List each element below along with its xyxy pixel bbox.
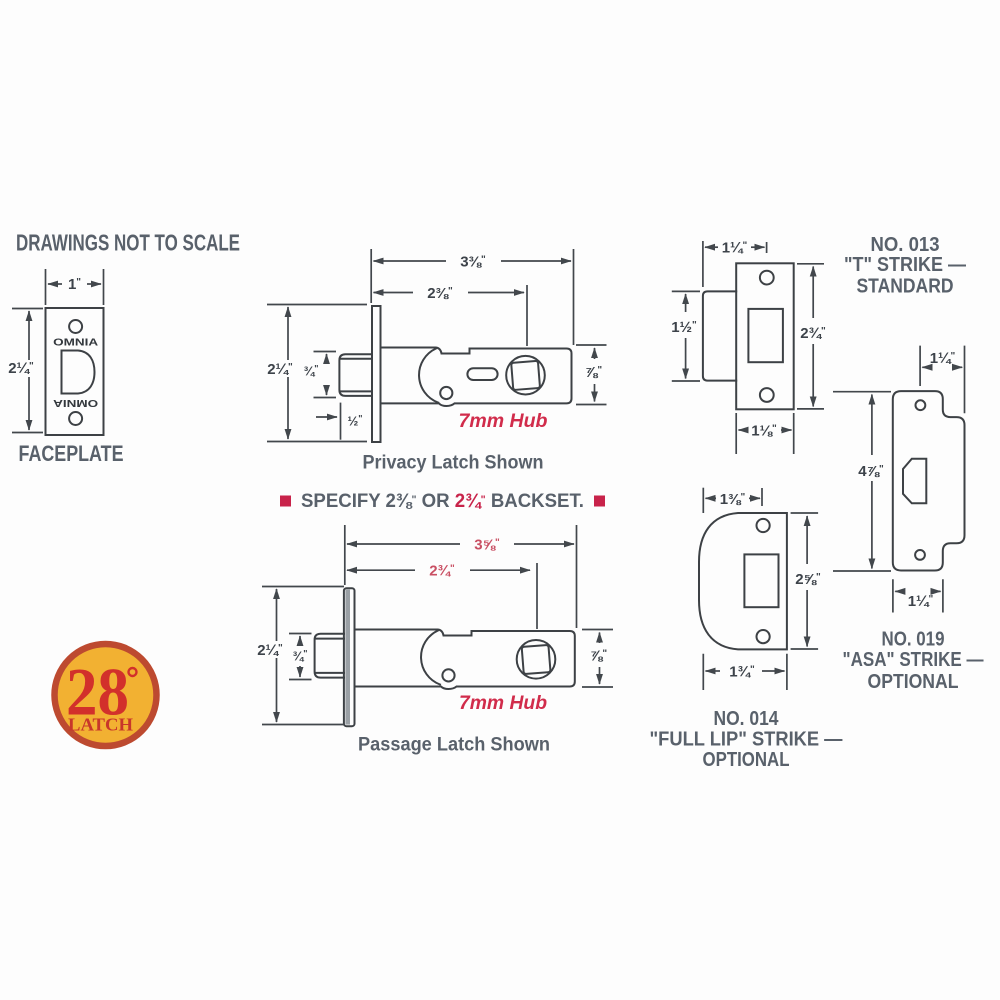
svg-text:SPECIFY 2⅜" OR 2¾" BACKSET.: SPECIFY 2⅜" OR 2¾" BACKSET.: [301, 490, 584, 512]
svg-text:"FULL LIP" STRIKE —: "FULL LIP" STRIKE —: [650, 729, 843, 751]
svg-text:OPTIONAL: OPTIONAL: [868, 671, 959, 693]
svg-text:NO. 013: NO. 013: [871, 234, 940, 256]
svg-text:Privacy Latch Shown: Privacy Latch Shown: [363, 453, 544, 474]
svg-text:Passage Latch Shown: Passage Latch Shown: [358, 735, 550, 756]
svg-text:OPTIONAL: OPTIONAL: [703, 749, 790, 771]
svg-text:OMNIA: OMNIA: [53, 337, 99, 349]
svg-text:NO. 019: NO. 019: [882, 629, 945, 651]
svg-text:NO. 014: NO. 014: [714, 708, 780, 730]
svg-text:LATCH: LATCH: [68, 715, 133, 735]
svg-text:7mm Hub: 7mm Hub: [459, 692, 547, 714]
svg-text:"T" STRIKE —: "T" STRIKE —: [844, 254, 966, 276]
svg-text:"ASA" STRIKE —: "ASA" STRIKE —: [843, 649, 984, 671]
svg-text:OMNIA: OMNIA: [53, 397, 99, 409]
svg-text:7mm Hub: 7mm Hub: [459, 410, 548, 432]
svg-text:FACEPLATE: FACEPLATE: [19, 441, 124, 466]
svg-text:STANDARD: STANDARD: [857, 276, 954, 298]
svg-text:DRAWINGS NOT TO SCALE: DRAWINGS NOT TO SCALE: [16, 230, 240, 256]
